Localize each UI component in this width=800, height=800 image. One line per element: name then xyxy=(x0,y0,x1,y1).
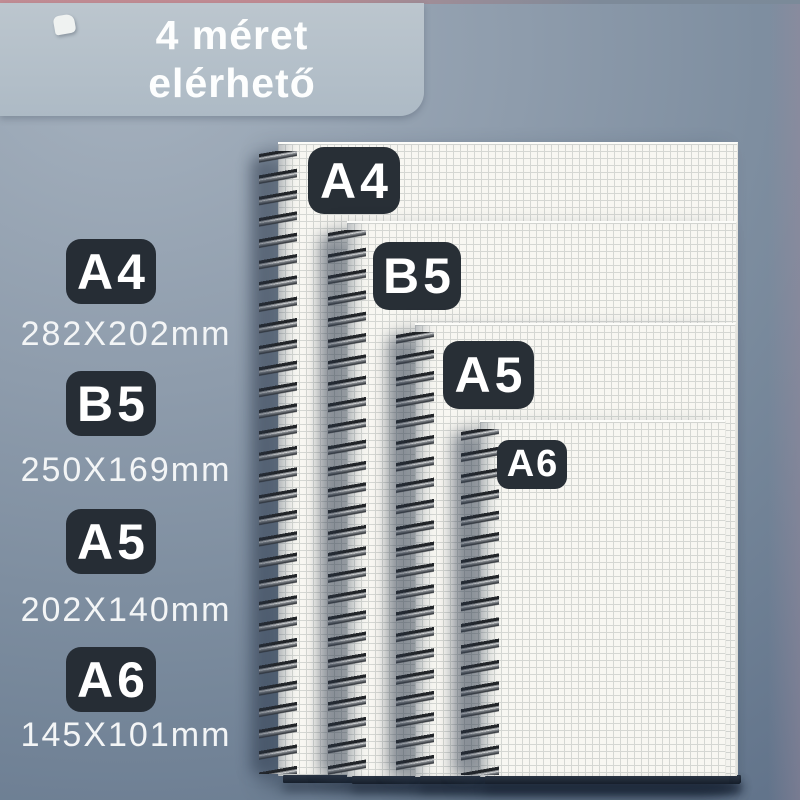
legend-badge-a6: A6 xyxy=(66,647,156,712)
notebook-a4-label-badge: A4 xyxy=(308,147,400,214)
legend-dims-a6: 145X101mm xyxy=(0,717,252,753)
notebook-a5-spiral-binding xyxy=(396,332,434,775)
notebook-b5-label: B5 xyxy=(383,247,455,305)
banner-text: 4 méret elérhető xyxy=(60,11,404,107)
legend-dims-a5: 202X140mm xyxy=(0,592,252,628)
legend-dims-b5: 250X169mm xyxy=(0,452,252,488)
legend-badge-a6-label: A6 xyxy=(77,651,149,709)
legend-badge-a5: A5 xyxy=(66,509,156,574)
notebook-b5-spiral-binding xyxy=(328,230,366,775)
legend-badge-a5-label: A5 xyxy=(77,513,149,571)
notebook-a6: A6 xyxy=(480,420,726,777)
banner-line-1: 4 méret xyxy=(60,11,404,59)
notebook-a6-label: A6 xyxy=(507,443,560,486)
notebook-a5-label: A5 xyxy=(455,346,527,404)
header-banner: 4 méret elérhető xyxy=(0,3,424,116)
product-image: A4 B5 A5 A6 A4 282X202mm B5 250X169mm A5… xyxy=(0,0,800,800)
legend-badge-a4: A4 xyxy=(66,239,156,304)
notebook-a4-spiral-binding xyxy=(259,151,297,774)
notebook-a5-label-badge: A5 xyxy=(443,341,534,409)
notebook-a6-spiral-binding xyxy=(461,429,499,775)
legend-badge-a4-label: A4 xyxy=(77,243,149,301)
notebook-b5-label-badge: B5 xyxy=(373,242,461,310)
notebook-a6-label-badge: A6 xyxy=(497,440,567,489)
legend-badge-b5: B5 xyxy=(66,371,156,436)
notebook-a4-label: A4 xyxy=(320,152,392,210)
legend-badge-b5-label: B5 xyxy=(77,375,149,433)
legend-dims-a4: 282X202mm xyxy=(0,316,252,352)
banner-line-2: elérhető xyxy=(60,59,404,107)
